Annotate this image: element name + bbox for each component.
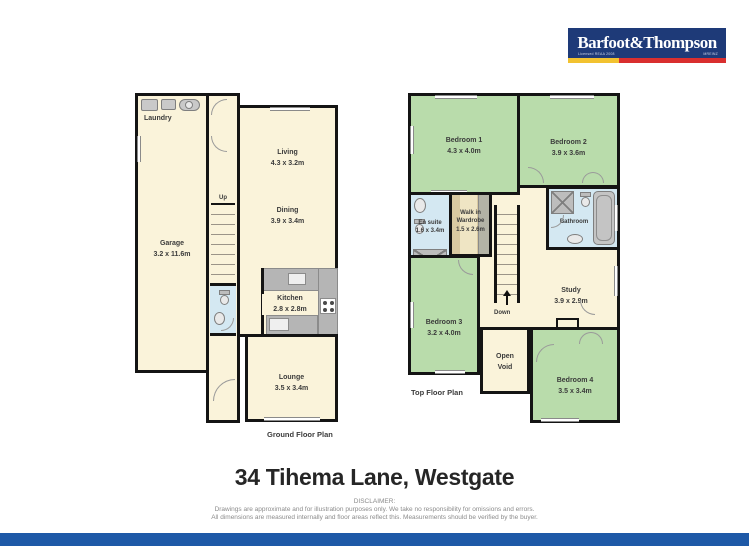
stairs-up-label: Up bbox=[219, 195, 227, 201]
barfoot-thompson-logo: Barfoot&Thompson Licensed REAA 2008 MREI… bbox=[568, 28, 726, 58]
garage-label: Garage 3.2 x 11.6m bbox=[138, 239, 206, 260]
wardrobe-door-arc-icon bbox=[593, 172, 604, 183]
logo-subtext-right: MREINZ bbox=[703, 52, 718, 56]
window-icon bbox=[270, 107, 310, 111]
lounge-label: Lounge 3.5 x 3.4m bbox=[248, 373, 335, 394]
wardrobe-door-arc-icon bbox=[579, 332, 591, 344]
hob-icon bbox=[320, 298, 336, 314]
door-arc-icon bbox=[536, 344, 554, 362]
disclaimer-line1: Drawings are approximate and for illustr… bbox=[0, 506, 749, 514]
room-bathroom: Bathroom bbox=[546, 186, 620, 250]
sink-icon bbox=[414, 198, 426, 213]
window-icon bbox=[264, 417, 320, 421]
open-void-label: Open Void bbox=[483, 352, 527, 373]
door-arc-icon bbox=[528, 167, 544, 183]
kitchen-sink-icon bbox=[288, 273, 306, 285]
laundry-sink-icon bbox=[185, 101, 193, 109]
room-bedroom2: Bedroom 2 3.9 x 3.6m bbox=[517, 93, 620, 188]
kitchen-label: Kitchen 2.8 x 2.8m bbox=[262, 294, 318, 315]
open-void: Open Void bbox=[480, 327, 530, 394]
room-bedroom1: Bedroom 1 4.3 x 4.0m bbox=[408, 93, 520, 195]
ground-hall: Up bbox=[206, 93, 240, 423]
study-label: Study 3.9 x 2.9m bbox=[523, 286, 619, 307]
window-icon bbox=[137, 136, 141, 162]
door-arc-icon bbox=[458, 260, 473, 275]
room-bedroom4: Bedroom 4 3.5 x 3.4m bbox=[530, 327, 620, 423]
floorplan-sheet: Barfoot&Thompson Licensed REAA 2008 MREI… bbox=[0, 0, 749, 546]
washer-icon bbox=[141, 99, 158, 111]
dishwasher-icon bbox=[269, 318, 289, 331]
room-bedroom3: Bedroom 3 3.2 x 4.0m bbox=[408, 255, 480, 375]
window-icon bbox=[435, 370, 465, 374]
stairs-down-arrow-icon bbox=[506, 296, 508, 305]
logo-stripe-red bbox=[619, 58, 726, 63]
room-wc bbox=[210, 283, 236, 336]
room-living-dining: Living 4.3 x 3.2m Dining 3.9 x 3.4m Kitc… bbox=[237, 105, 338, 337]
door-arc-icon bbox=[211, 136, 227, 152]
door-arc-icon bbox=[221, 318, 234, 331]
toilet-icon bbox=[580, 192, 591, 208]
sink-icon bbox=[567, 234, 583, 244]
disclaimer: DISCLAIMER: Drawings are approximate and… bbox=[0, 498, 749, 522]
window-icon bbox=[541, 418, 579, 422]
wardrobe-door-arc-icon bbox=[582, 172, 593, 183]
room-wardrobe: Walk in Wardrobe 1.5 x 2.6m bbox=[449, 192, 492, 257]
disclaimer-heading: DISCLAIMER: bbox=[0, 498, 749, 506]
laundry-label: Laundry bbox=[144, 114, 172, 125]
stairs-down-label: Down bbox=[494, 310, 510, 316]
top-floor-caption: Top Floor Plan bbox=[411, 388, 463, 397]
wardrobe-door-arc-icon bbox=[591, 332, 603, 344]
staircase-top bbox=[494, 205, 520, 303]
toilet-icon bbox=[219, 290, 230, 306]
room-lounge: Lounge 3.5 x 3.4m bbox=[245, 334, 338, 422]
ground-floor-caption: Ground Floor Plan bbox=[267, 430, 333, 439]
staircase-ground bbox=[211, 203, 235, 283]
ensuite-label: En suite 1.6 x 3.4m bbox=[411, 219, 449, 236]
window-icon bbox=[435, 95, 477, 99]
wardrobe-label: Walk in Wardrobe 1.5 x 2.6m bbox=[452, 209, 489, 234]
footer-bar bbox=[0, 533, 749, 546]
logo-stripe bbox=[568, 58, 726, 63]
logo-subtext-left: Licensed REAA 2008 bbox=[578, 52, 615, 56]
front-door-arc-icon bbox=[213, 379, 235, 401]
window-icon bbox=[410, 302, 414, 328]
bedroom4-label: Bedroom 4 3.5 x 3.4m bbox=[533, 376, 617, 397]
window-icon bbox=[550, 95, 594, 99]
page-title: 34 Tihema Lane, Westgate bbox=[0, 464, 749, 491]
bedroom1-label: Bedroom 1 4.3 x 4.0m bbox=[411, 136, 517, 157]
logo-stripe-yellow bbox=[568, 58, 619, 63]
bedroom2-label: Bedroom 2 3.9 x 3.6m bbox=[520, 138, 617, 159]
door-arc-icon bbox=[211, 99, 227, 115]
dining-label: Dining 3.9 x 3.4m bbox=[240, 206, 335, 227]
bedroom3-label: Bedroom 3 3.2 x 4.0m bbox=[411, 318, 477, 339]
dryer-icon bbox=[161, 99, 176, 110]
window-icon bbox=[614, 205, 618, 231]
logo-wordmark: Barfoot&Thompson bbox=[577, 33, 716, 53]
living-label: Living 4.3 x 3.2m bbox=[240, 148, 335, 169]
room-garage: Laundry Garage 3.2 x 11.6m bbox=[135, 93, 209, 373]
disclaimer-line2: All dimensions are measured internally a… bbox=[0, 514, 749, 522]
shower-icon bbox=[551, 191, 574, 214]
window-icon bbox=[614, 266, 618, 296]
